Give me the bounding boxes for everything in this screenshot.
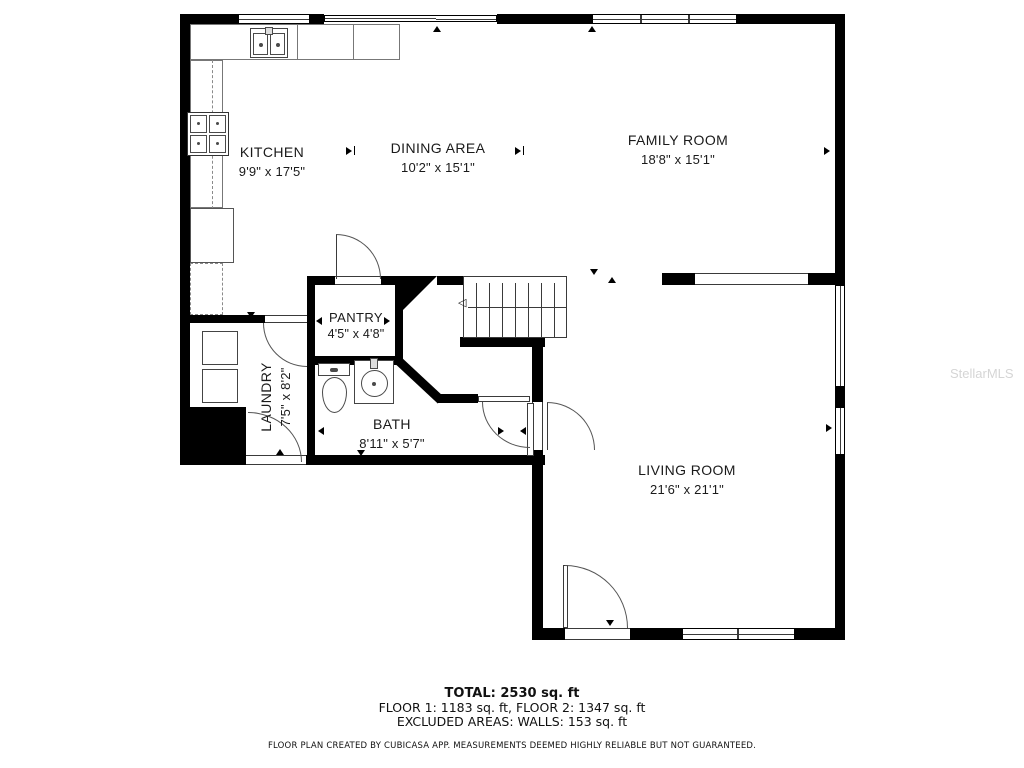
dimension-arrow-icon: [384, 317, 390, 325]
room-label-laundry: LAUNDRY 7'5" x 8'2": [257, 362, 295, 431]
toilet-bowl-icon: [322, 377, 347, 413]
wall-segment: [305, 455, 545, 465]
dimension-arrow-icon: [433, 26, 441, 32]
wall-segment: [835, 14, 845, 285]
total-area-text: TOTAL: 2530 sq. ft: [0, 687, 1024, 701]
floor-areas-text: FLOOR 1: 1183 sq. ft, FLOOR 2: 1347 sq. …: [0, 701, 1024, 715]
dimension-arrow-icon: [498, 427, 504, 435]
door-sill: [265, 315, 307, 323]
room-label-dining-area: DINING AREA 10'2" x 15'1": [391, 139, 486, 177]
watermark: StellarMLS: [950, 366, 1014, 381]
dimension-arrow-icon: [588, 26, 596, 32]
dimension-arrow-icon: [608, 277, 616, 283]
wall-segment: [630, 628, 682, 640]
dryer-icon: [202, 369, 238, 403]
dimension-arrow-icon: [348, 356, 356, 362]
door-arc: [565, 565, 628, 628]
wall-segment: [497, 14, 592, 24]
floor-plan: ◁: [0, 0, 1024, 768]
wall-segment: [835, 455, 845, 640]
window: [682, 628, 795, 640]
door-arc: [263, 323, 307, 367]
kitchen-counter: [190, 24, 400, 60]
counter-dashed-cabinet: [190, 263, 223, 315]
door-arc: [547, 402, 595, 450]
wall-segment: [835, 387, 845, 407]
dimension-arrow-icon: [826, 424, 832, 432]
wall-segment: [662, 273, 695, 285]
dimension-arrow-icon: [316, 317, 322, 325]
wall-segment: [532, 450, 543, 640]
window: [592, 14, 737, 24]
door-arc: [482, 402, 530, 448]
wall-segment: [180, 14, 190, 465]
dimension-arrow-icon: [606, 620, 614, 626]
dimension-arrow-icon: [357, 450, 365, 456]
washer-icon: [202, 331, 238, 365]
staircase: [463, 276, 567, 338]
dimension-arrow-icon: [515, 147, 521, 155]
wall-chamfer: [403, 276, 437, 310]
wall-segment: [808, 273, 845, 285]
cased-opening: [695, 273, 808, 285]
excluded-areas-text: EXCLUDED AREAS: WALLS: 153 sq. ft: [0, 715, 1024, 729]
window: [238, 14, 310, 24]
dimension-arrow-icon: [346, 147, 352, 155]
dimension-arrow-icon: [824, 147, 830, 155]
bath-sink-icon: [354, 360, 394, 404]
wall-segment: [307, 276, 315, 465]
kitchen-sink-icon: [250, 28, 288, 58]
wall-segment: [310, 14, 324, 24]
disclaimer-text: FLOOR PLAN CREATED BY CUBICASA APP. MEAS…: [0, 741, 1024, 751]
dimension-arrow-icon: [318, 427, 324, 435]
wall-segment: [307, 276, 335, 285]
door-arc: [336, 234, 381, 279]
wall-segment: [737, 14, 845, 24]
dimension-bar-icon: [523, 146, 524, 155]
wall-segment: [438, 394, 478, 403]
wall-segment: [795, 628, 845, 640]
dimension-arrow-icon: [276, 449, 284, 455]
dimension-bar-icon: [354, 146, 355, 155]
dimension-arrow-icon: [184, 362, 190, 370]
wall-segment: [395, 276, 403, 360]
window: [835, 407, 845, 455]
dimension-arrow-icon: [590, 269, 598, 275]
toilet-icon: [318, 363, 350, 376]
room-label-pantry: PANTRY 4'5" x 4'8": [328, 309, 385, 342]
stairs-direction-icon: ◁: [458, 298, 466, 309]
dimension-arrow-icon: [520, 427, 526, 435]
wall-segment: [532, 337, 543, 402]
wall-diagonal: [394, 356, 444, 404]
window-slider: [324, 15, 497, 22]
footer: TOTAL: 2530 sq. ft FLOOR 1: 1183 sq. ft,…: [0, 687, 1024, 751]
dimension-arrow-icon: [247, 312, 255, 318]
stove-icon: [187, 112, 229, 156]
room-label-kitchen: KITCHEN 9'9" x 17'5": [239, 143, 305, 181]
entry-door-sill: [565, 628, 630, 640]
fridge-icon: [190, 208, 234, 263]
room-label-family-room: FAMILY ROOM 18'8" x 15'1": [628, 131, 728, 169]
wall-mass: [184, 407, 246, 465]
window: [835, 285, 845, 387]
room-label-living-room: LIVING ROOM 21'6" x 21'1": [638, 461, 736, 499]
room-label-bath: BATH 8'11" x 5'7": [359, 415, 425, 453]
